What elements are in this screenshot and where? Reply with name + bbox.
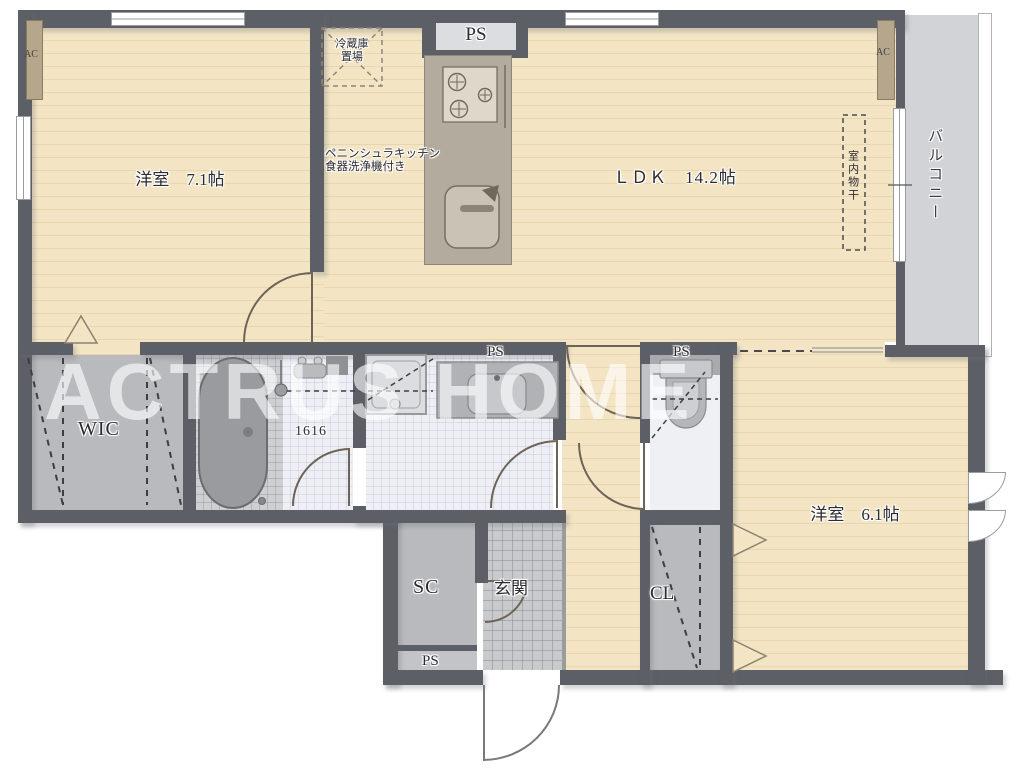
sc-label: SC	[413, 576, 439, 599]
fridge-space-line2: 置場	[322, 51, 382, 64]
watermark: ACTRUS HOME	[44, 346, 804, 438]
bedroom-second-label: 洋室 6.1帖	[775, 505, 935, 525]
ps-label-washroom: PS	[487, 344, 504, 361]
ps-label-sc: PS	[422, 653, 439, 670]
indoor-laundry-label: 室内物干	[846, 150, 859, 202]
entrance-label: 玄関	[494, 579, 528, 599]
closet-door-triangle-2	[733, 640, 766, 672]
closet-door-triangle-1	[733, 524, 766, 556]
kitchen-note-line1: ペニンシュラキッチン	[325, 148, 440, 161]
kitchen-note-label: ペニンシュラキッチン 食器洗浄機付き	[325, 148, 440, 174]
ac-label-right: AC	[876, 47, 890, 59]
floor-plan: ACTRUS HOME 洋室 7.1帖 ＬＤＫ 14.2帖 洋室 6.1帖 バル…	[0, 0, 1013, 768]
wic-door-triangle	[65, 316, 97, 343]
kitchen-note-line2: 食器洗浄機付き	[325, 161, 440, 174]
bath-size-label: 1616	[295, 424, 327, 440]
wic-label: WIC	[78, 418, 120, 441]
ldk-label: ＬＤＫ 14.2帖	[585, 168, 765, 188]
fridge-space-label: 冷蔵庫 置場	[322, 38, 382, 63]
ac-label-left: AC	[24, 49, 38, 61]
fridge-space-line1: 冷蔵庫	[322, 38, 382, 51]
ps-label-top: PS	[436, 24, 516, 46]
balcony-label: バルコニー	[925, 128, 942, 223]
ps-label-toilet: PS	[673, 344, 690, 361]
bedroom-main-label: 洋室 7.1帖	[100, 170, 260, 190]
stove-icon	[443, 65, 505, 128]
cl-label: CL	[650, 583, 674, 605]
kitchen-sink-icon	[445, 185, 499, 248]
